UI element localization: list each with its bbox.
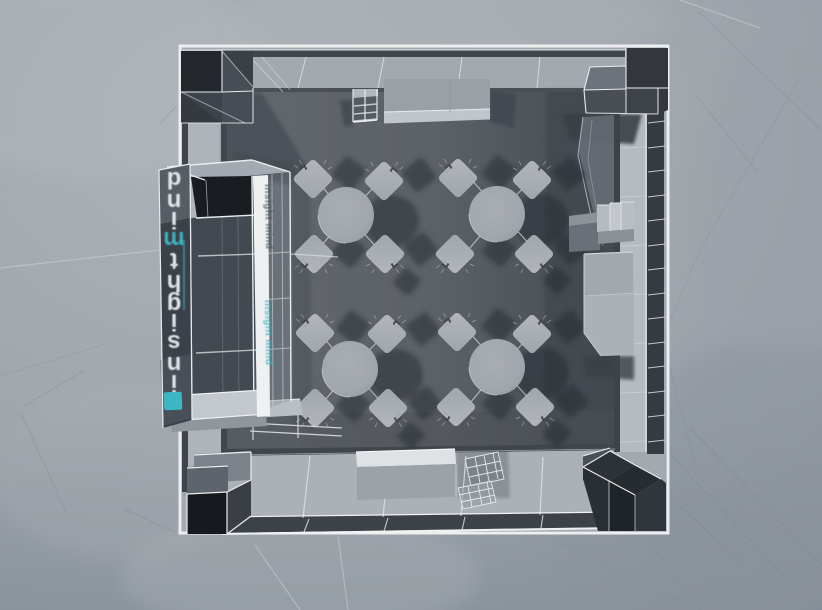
svg-text:insight mind: insight mind <box>262 300 274 366</box>
svg-text:insight mind: insight mind <box>262 184 274 250</box>
